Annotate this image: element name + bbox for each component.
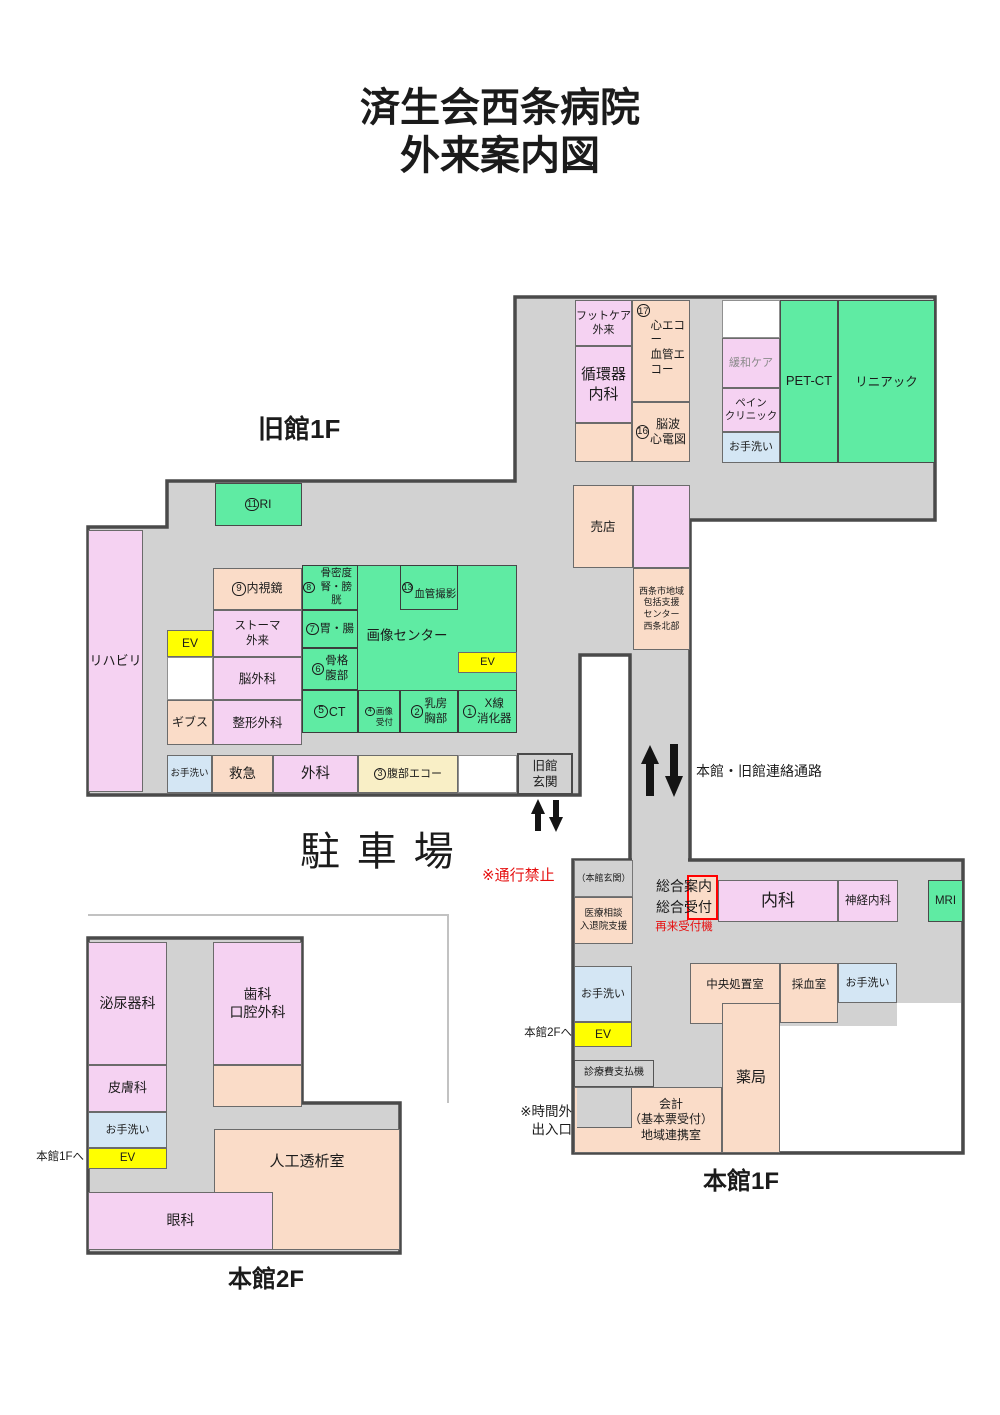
room-image-reception-4: 4画像受付 — [358, 690, 400, 733]
room-blank-white-3 — [458, 755, 517, 793]
room-blank-peach-1 — [575, 423, 632, 462]
room-urology: 泌尿器科 — [88, 942, 167, 1065]
room-neurology: 神経内科 — [838, 880, 898, 922]
main-2f-title: 本館2F — [228, 1264, 304, 1295]
room-cardiology: 循環器内科 — [575, 346, 632, 423]
room-palliative-care: 緩和ケア — [722, 338, 780, 388]
room-echo-17: 17心エコー血管エコー — [632, 300, 690, 402]
room-shop: 売店 — [573, 485, 633, 568]
after-hours-entrance-label: ※時間外出入口 — [498, 1103, 572, 1138]
room-blank-white-1 — [722, 300, 780, 338]
room-orthopedics: 整形外科 — [213, 700, 302, 745]
room-blood-sampling: 採血室 — [780, 963, 838, 1023]
to-main-2f-label: 本館2Fへ — [506, 1026, 572, 1041]
hospital-floor-map: 済生会西条病院 外来案内図 旧館1F フットケア外来 循環器内科 17心エコー血… — [0, 0, 1000, 1415]
main-entrance-label-box: （本館玄関） — [574, 860, 633, 897]
accounting-gray-notch — [577, 1088, 632, 1128]
room-toilet-3: お手洗い — [574, 966, 632, 1022]
room-community-support-center: 西条市地域包括支援センター西条北部 — [633, 568, 690, 650]
room-bone-density-8: 8骨密度腎・膀胱 — [302, 565, 358, 610]
room-foot-care: フットケア外来 — [575, 300, 632, 346]
room-abdominal-echo-3: 3腹部エコー — [358, 755, 458, 793]
room-endoscopy-9: 9内視鏡 — [213, 568, 302, 610]
page-title: 済生会西条病院 外来案内図 — [0, 84, 1000, 180]
room-blank-peach-2 — [213, 1065, 302, 1107]
room-emergency: 救急 — [212, 755, 273, 793]
elevator-old-1: EV — [167, 630, 213, 657]
room-neurosurgery: 脳外科 — [213, 657, 302, 700]
parking-label: 駐車場 — [300, 826, 470, 878]
elevator-main-2f: EV — [88, 1148, 167, 1169]
entrance-arrows-icon — [531, 799, 563, 832]
room-toilet-1: お手洗い — [722, 432, 780, 463]
room-blank-white-2 — [167, 657, 213, 700]
room-rehabilitation: リハビリ — [88, 530, 143, 792]
room-eeg-ecg-16: 16脳波心電図 — [632, 402, 690, 462]
general-reception-label: 総合案内総合受付 — [646, 876, 722, 918]
room-breast-chest-2: 2乳房胸部 — [400, 690, 458, 733]
room-internal-medicine: 内科 — [718, 880, 838, 922]
room-ct-5: 5CT — [302, 690, 358, 733]
page-title-line2: 外来案内図 — [400, 134, 600, 178]
room-stoma: ストーマ外来 — [213, 610, 302, 657]
payment-machine-box: 診療費支払機 — [574, 1060, 654, 1087]
room-ophthalmology: 眼科 — [88, 1192, 273, 1250]
old-building-title: 旧館1F — [258, 413, 340, 447]
room-linac: リニアック — [838, 300, 935, 463]
elevator-main-1f: EV — [574, 1022, 632, 1047]
no-passage-label: ※通行禁止 — [482, 866, 555, 886]
room-cast: ギブス — [167, 700, 213, 745]
room-blank-pink-1 — [633, 485, 690, 568]
room-dental-oral-surgery: 歯科口腔外科 — [213, 942, 302, 1065]
room-ri-11: 11RI — [215, 483, 302, 526]
elevator-imaging: EV — [458, 652, 517, 673]
corridor-label: 本館・旧館連絡通路 — [696, 762, 822, 780]
room-mri: MRI — [928, 880, 963, 922]
room-skeleton-abdomen-6: 6骨格腹部 — [302, 648, 358, 690]
room-medical-consultation: 医療相談入退院支援 — [574, 897, 633, 944]
old-building-entrance: 旧館玄関 — [517, 753, 573, 795]
room-pharmacy: 薬局 — [722, 1003, 780, 1153]
room-toilet-4: お手洗い — [838, 963, 897, 1003]
room-toilet-5: お手洗い — [88, 1112, 167, 1148]
room-angiography-13: 13血管撮影 — [400, 565, 458, 610]
room-toilet-2: お手洗い — [167, 755, 212, 793]
room-xray-digestive-1: 1X線消化器 — [458, 690, 517, 733]
room-dermatology: 皮膚科 — [88, 1065, 167, 1112]
recheck-machine-label: 再来受付機 — [646, 920, 722, 935]
room-surgery: 外科 — [273, 755, 358, 793]
room-pet-ct: PET-CT — [780, 300, 838, 463]
to-main-1f-label: 本館1Fへ — [20, 1150, 84, 1165]
main-1f-title: 本館1F — [703, 1166, 779, 1197]
page-title-line1: 済生会西条病院 — [360, 86, 640, 130]
room-pain-clinic: ペインクリニック — [722, 388, 780, 432]
imaging-center-label: 画像センター — [337, 627, 477, 645]
